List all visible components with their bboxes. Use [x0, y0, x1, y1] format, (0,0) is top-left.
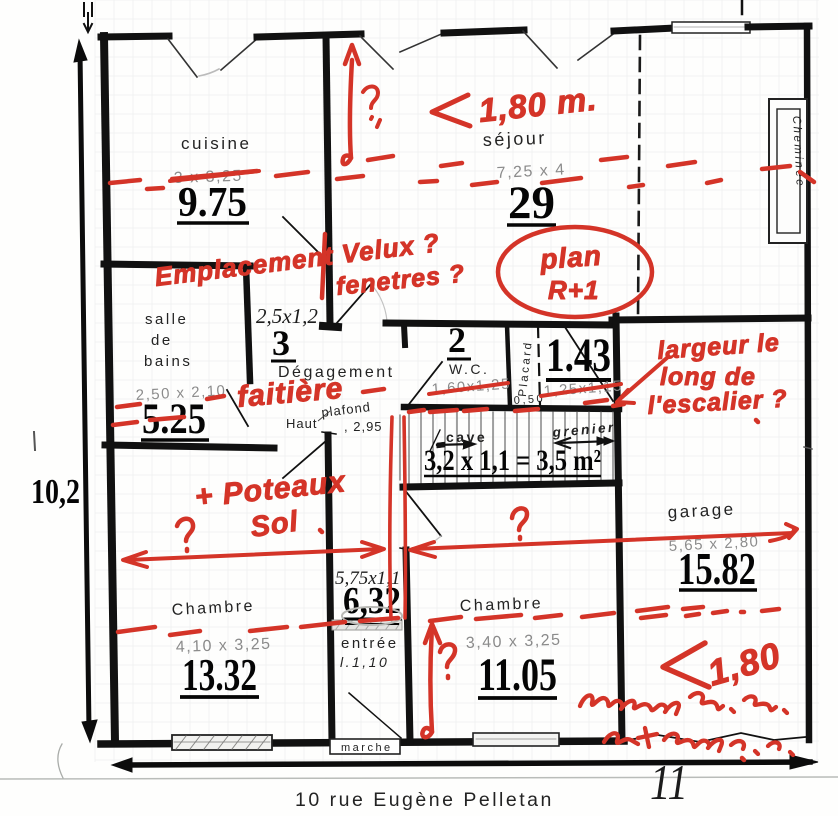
svg-text:largeur le: largeur le	[656, 329, 780, 365]
svg-text:15.82: 15.82	[678, 543, 756, 594]
svg-text:W.C.: W.C.	[449, 361, 489, 377]
svg-text:garage: garage	[667, 499, 736, 522]
svg-text:13.32: 13.32	[182, 649, 257, 700]
svg-text:, 2,95: , 2,95	[344, 419, 383, 434]
svg-text:2: 2	[448, 320, 466, 360]
svg-text:Chambre: Chambre	[460, 595, 544, 615]
svg-text:l.1,10: l.1,10	[340, 654, 389, 670]
svg-text:1,80: 1,80	[703, 634, 786, 694]
svg-text:10 rue Eugène Pelletan: 10 rue Eugène Pelletan	[295, 789, 554, 811]
svg-text:1,80 m.: 1,80 m.	[477, 80, 599, 129]
svg-text:cuisine: cuisine	[181, 134, 251, 153]
svg-text:Sol: Sol	[249, 506, 301, 544]
svg-text:R+1: R+1	[548, 275, 599, 305]
svg-text:bains: bains	[144, 353, 192, 370]
svg-text:29: 29	[508, 177, 555, 229]
svg-text:11.05: 11.05	[478, 649, 557, 701]
svg-text:3,2 x 1,1 = 3,5 m²: 3,2 x 1,1 = 3,5 m²	[424, 444, 601, 477]
svg-text:l'escalier ?: l'escalier ?	[647, 385, 789, 420]
svg-text:Chambre: Chambre	[171, 598, 255, 619]
svg-text:1.43: 1.43	[546, 329, 611, 382]
svg-text:cave: cave	[446, 429, 487, 445]
svg-text:marche: marche	[341, 742, 393, 754]
svg-text:de: de	[151, 332, 173, 349]
svg-text:plan: plan	[538, 240, 603, 275]
svg-text:10,2: 10,2	[31, 472, 80, 511]
svg-text:salle: salle	[145, 311, 188, 328]
svg-text:3: 3	[272, 323, 290, 363]
svg-text:9.75: 9.75	[178, 180, 247, 226]
svg-text:Haut: Haut	[286, 416, 317, 431]
svg-text:+ Poteaux: + Poteaux	[193, 465, 347, 514]
svg-text:séjour: séjour	[482, 128, 547, 150]
svg-text:11: 11	[650, 754, 688, 810]
svg-text:entrée: entrée	[341, 635, 399, 652]
